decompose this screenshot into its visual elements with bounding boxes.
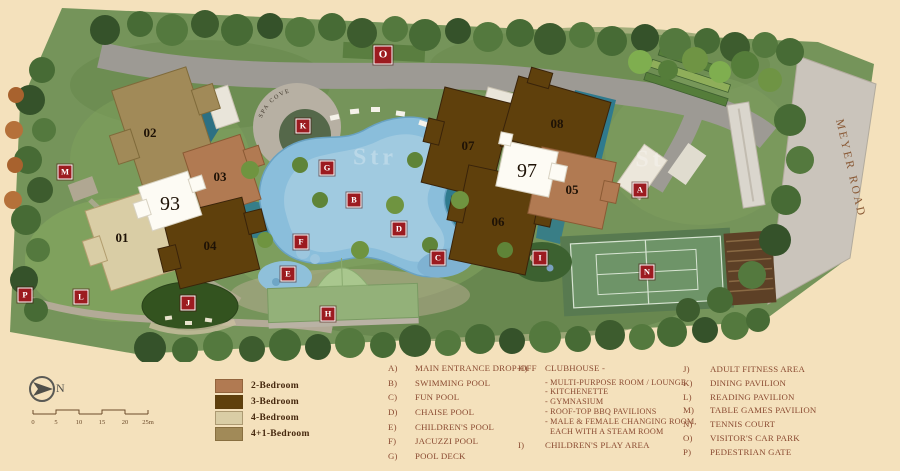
legend-row-3br: 3-Bedroom bbox=[215, 395, 299, 408]
facility-row: B)SWIMMING POOL bbox=[388, 378, 537, 393]
marker-dining-pavilion: K bbox=[296, 119, 311, 134]
facility-list-a-g: A)MAIN ENTRANCE DROP-OFF B)SWIMMING POOL… bbox=[388, 363, 537, 466]
marker-pool-deck: G bbox=[320, 161, 335, 176]
site-plan-map: MEYER ROAD SPA COVE bbox=[0, 0, 900, 362]
facility-key: D) bbox=[388, 407, 415, 417]
facility-row: K)DINING PAVILION bbox=[683, 378, 816, 392]
scale-tick-10: 10 bbox=[76, 419, 83, 426]
label-block-97: 97 bbox=[517, 160, 537, 182]
marker-reading-pavilion: L bbox=[74, 290, 89, 305]
clubhouse-sub-item: - MALE & FEMALE CHANGING ROOM, bbox=[545, 417, 697, 427]
facility-row: L)READING PAVILION bbox=[683, 392, 816, 406]
clubhouse-sub-item: - GYMNASIUM bbox=[545, 397, 697, 407]
facility-key: H) bbox=[518, 363, 545, 373]
facility-row: P)PEDESTRIAN GATE bbox=[683, 447, 816, 461]
clubhouse-sublist: - MULTI-PURPOSE ROOM / LOUNGE - KITCHENE… bbox=[545, 378, 697, 437]
facility-label: POOL DECK bbox=[415, 451, 466, 461]
marker-visitors-car-park: O bbox=[374, 46, 393, 65]
facility-label: CHILDREN'S POOL bbox=[415, 422, 494, 432]
marker-chaise-pool: D bbox=[392, 222, 407, 237]
facility-row: H)CLUBHOUSE - bbox=[518, 363, 697, 378]
marker-childrens-pool: E bbox=[281, 267, 296, 282]
facility-key: B) bbox=[388, 378, 415, 388]
facility-row: G)POOL DECK bbox=[388, 451, 537, 466]
legend-row-2br: 2-Bedroom bbox=[215, 379, 299, 392]
facility-key: N) bbox=[683, 419, 710, 429]
marker-main-entrance: A bbox=[633, 183, 648, 198]
legend-row-4p1br: 4+1-Bedroom bbox=[215, 427, 310, 440]
label-block-04: 04 bbox=[204, 238, 218, 253]
facility-row: D)CHAISE POOL bbox=[388, 407, 537, 422]
facility-row: E)CHILDREN'S POOL bbox=[388, 422, 537, 437]
label-3-bedroom: 3-Bedroom bbox=[251, 397, 299, 407]
facility-label: VISITOR'S CAR PARK bbox=[710, 433, 800, 443]
label-block-01: 01 bbox=[116, 230, 129, 245]
site-plan-screenshot: MEYER ROAD SPA COVE bbox=[0, 0, 900, 471]
facility-label: TENNIS COURT bbox=[710, 419, 775, 429]
facility-key: G) bbox=[388, 451, 415, 461]
marker-swimming-pool: B bbox=[347, 193, 362, 208]
label-block-02: 02 bbox=[144, 125, 157, 140]
marker-fun-pool: C bbox=[431, 251, 446, 266]
marker-childrens-play-area: I bbox=[533, 251, 548, 266]
facility-list-j-p: J)ADULT FITNESS AREA K)DINING PAVILION L… bbox=[683, 364, 816, 461]
legend-row-4br: 4-Bedroom bbox=[215, 411, 299, 424]
facility-key: A) bbox=[388, 363, 415, 373]
watermark-text: St bbox=[635, 147, 664, 174]
north-label: N bbox=[56, 381, 65, 396]
facility-key: P) bbox=[683, 447, 710, 457]
facility-key: K) bbox=[683, 378, 710, 388]
clubhouse-sub-item: EACH WITH A STEAM ROOM bbox=[550, 427, 697, 437]
scale-tick-15: 15 bbox=[99, 419, 106, 426]
swatch-2-bedroom bbox=[215, 379, 243, 393]
swatch-4-bedroom bbox=[215, 411, 243, 425]
facility-label: CLUBHOUSE - bbox=[545, 363, 605, 373]
facility-label: TABLE GAMES PAVILION bbox=[710, 405, 816, 415]
label-block-03: 03 bbox=[214, 169, 228, 184]
label-block-08: 08 bbox=[551, 116, 565, 131]
facility-label: FUN POOL bbox=[415, 392, 459, 402]
facility-key: F) bbox=[388, 436, 415, 446]
marker-adult-fitness: J bbox=[181, 296, 196, 311]
swatch-4plus1-bedroom bbox=[215, 427, 243, 441]
marker-tennis-court: N bbox=[640, 265, 655, 280]
facility-row: M)TABLE GAMES PAVILION bbox=[683, 405, 816, 419]
facility-row: N)TENNIS COURT bbox=[683, 419, 816, 433]
facility-row: I)CHILDREN'S PLAY AREA bbox=[518, 440, 697, 455]
scale-tick-0: 0 bbox=[31, 419, 34, 426]
facility-label: ADULT FITNESS AREA bbox=[710, 364, 805, 374]
label-4-bedroom: 4-Bedroom bbox=[251, 413, 299, 423]
facility-row: J)ADULT FITNESS AREA bbox=[683, 364, 816, 378]
facility-label: CHAISE POOL bbox=[415, 407, 474, 417]
label-block-93: 93 bbox=[160, 193, 180, 215]
facility-key: J) bbox=[683, 364, 710, 374]
label-block-07: 07 bbox=[462, 138, 476, 153]
facility-key: E) bbox=[388, 422, 415, 432]
facility-key: C) bbox=[388, 392, 415, 402]
facility-label: READING PAVILION bbox=[710, 392, 795, 402]
facility-list-h-i: H)CLUBHOUSE - - MULTI-PURPOSE ROOM / LOU… bbox=[518, 363, 697, 455]
facility-label: JACUZZI POOL bbox=[415, 436, 478, 446]
scale-bar: 0 5 10 15 20 25m bbox=[28, 404, 168, 428]
facility-key: M) bbox=[683, 405, 710, 415]
marker-pedestrian-gate: P bbox=[18, 288, 33, 303]
facility-label: SWIMMING POOL bbox=[415, 378, 490, 388]
facility-label: PEDESTRIAN GATE bbox=[710, 447, 791, 457]
clubhouse-sub-item: - MULTI-PURPOSE ROOM / LOUNGE bbox=[545, 378, 697, 388]
label-block-05: 05 bbox=[566, 182, 580, 197]
facility-label: CHILDREN'S PLAY AREA bbox=[545, 440, 650, 450]
scale-tick-20: 20 bbox=[122, 419, 129, 426]
marker-table-games: M bbox=[58, 165, 73, 180]
facility-label: DINING PAVILION bbox=[710, 378, 786, 388]
facility-row: A)MAIN ENTRANCE DROP-OFF bbox=[388, 363, 537, 378]
scale-tick-25: 25m bbox=[142, 419, 154, 426]
facility-row: C)FUN POOL bbox=[388, 392, 537, 407]
marker-clubhouse: H bbox=[321, 307, 336, 322]
label-block-06: 06 bbox=[492, 214, 506, 229]
watermark-text: Str bbox=[353, 145, 397, 172]
clubhouse-sub-item: - ROOF-TOP BBQ PAVILIONS bbox=[545, 407, 697, 417]
facility-key: L) bbox=[683, 392, 710, 402]
facility-row: O)VISITOR'S CAR PARK bbox=[683, 433, 816, 447]
label-4plus1-bedroom: 4+1-Bedroom bbox=[251, 429, 310, 439]
swatch-3-bedroom bbox=[215, 395, 243, 409]
clubhouse-sub-item: - KITCHENETTE bbox=[545, 387, 697, 397]
facility-row: F)JACUZZI POOL bbox=[388, 436, 537, 451]
marker-jacuzzi-pool: F bbox=[294, 235, 309, 250]
facility-key: O) bbox=[683, 433, 710, 443]
facility-key: I) bbox=[518, 440, 545, 450]
label-2-bedroom: 2-Bedroom bbox=[251, 381, 299, 391]
scale-tick-5: 5 bbox=[54, 419, 57, 426]
